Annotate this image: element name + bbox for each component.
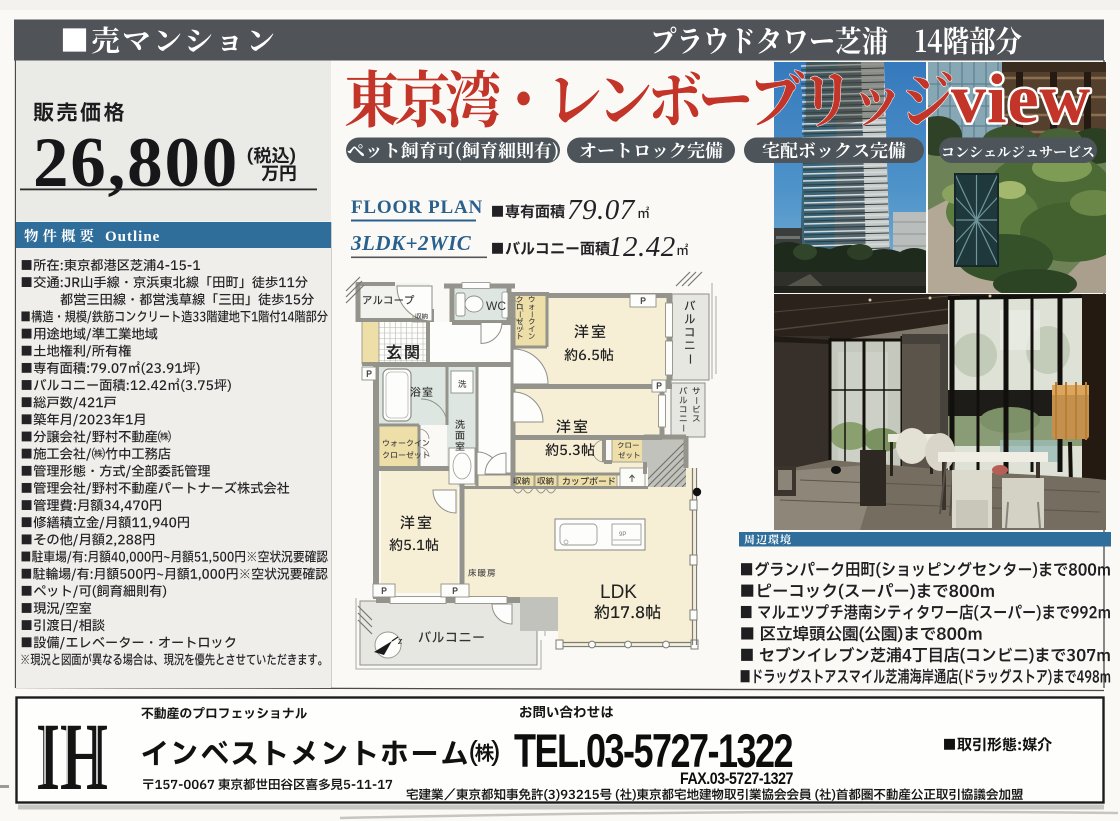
svg-text:FAX.03-5727-1327: FAX.03-5727-1327 [680,769,793,788]
svg-text:LDK: LDK [600,582,637,603]
svg-text:9P: 9P [619,532,626,538]
svg-text:WC: WC [486,299,506,313]
svg-text:Outline: Outline [105,229,160,245]
svg-text:z: z [397,635,403,647]
svg-text:FLOOR PLAN: FLOOR PLAN [351,197,483,218]
svg-text:view: view [951,61,1091,138]
svg-text:12.42: 12.42 [608,231,676,263]
svg-text:3LDK+2WIC: 3LDK+2WIC [350,231,472,255]
svg-text:79.07: 79.07 [567,194,636,226]
